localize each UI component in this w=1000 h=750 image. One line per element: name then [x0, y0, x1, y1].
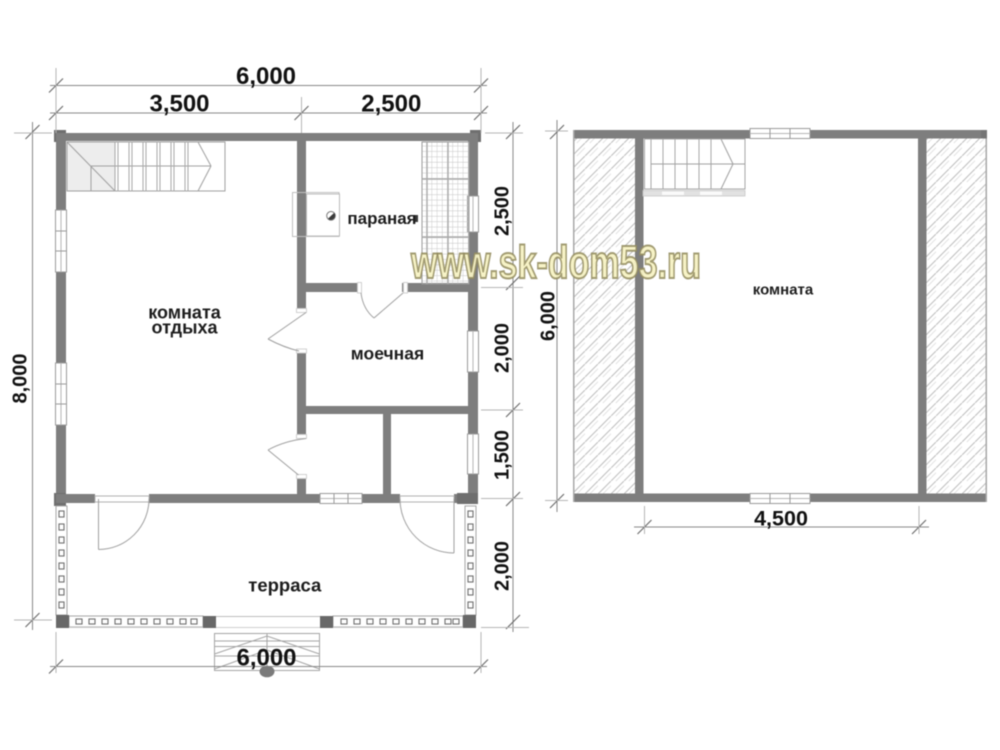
- svg-text:2,000: 2,000: [492, 541, 514, 591]
- svg-text:4,500: 4,500: [754, 507, 808, 531]
- svg-text:2,000: 2,000: [492, 323, 514, 373]
- svg-text:1,500: 1,500: [492, 430, 514, 480]
- svg-text:отдыха: отдыха: [152, 318, 219, 338]
- svg-text:3,500: 3,500: [149, 91, 209, 118]
- svg-text:2,500: 2,500: [492, 186, 514, 236]
- svg-text:моечная: моечная: [351, 344, 424, 364]
- svg-text:6,000: 6,000: [236, 63, 296, 90]
- svg-text:www.sk-dom53.ru: www.sk-dom53.ru: [410, 236, 701, 288]
- svg-text:терраса: терраса: [248, 575, 322, 596]
- svg-text:8,000: 8,000: [10, 353, 32, 403]
- svg-text:комната: комната: [753, 282, 814, 299]
- svg-text:параная: параная: [347, 209, 416, 228]
- svg-text:6,000: 6,000: [538, 291, 560, 341]
- svg-text:2,500: 2,500: [361, 91, 421, 118]
